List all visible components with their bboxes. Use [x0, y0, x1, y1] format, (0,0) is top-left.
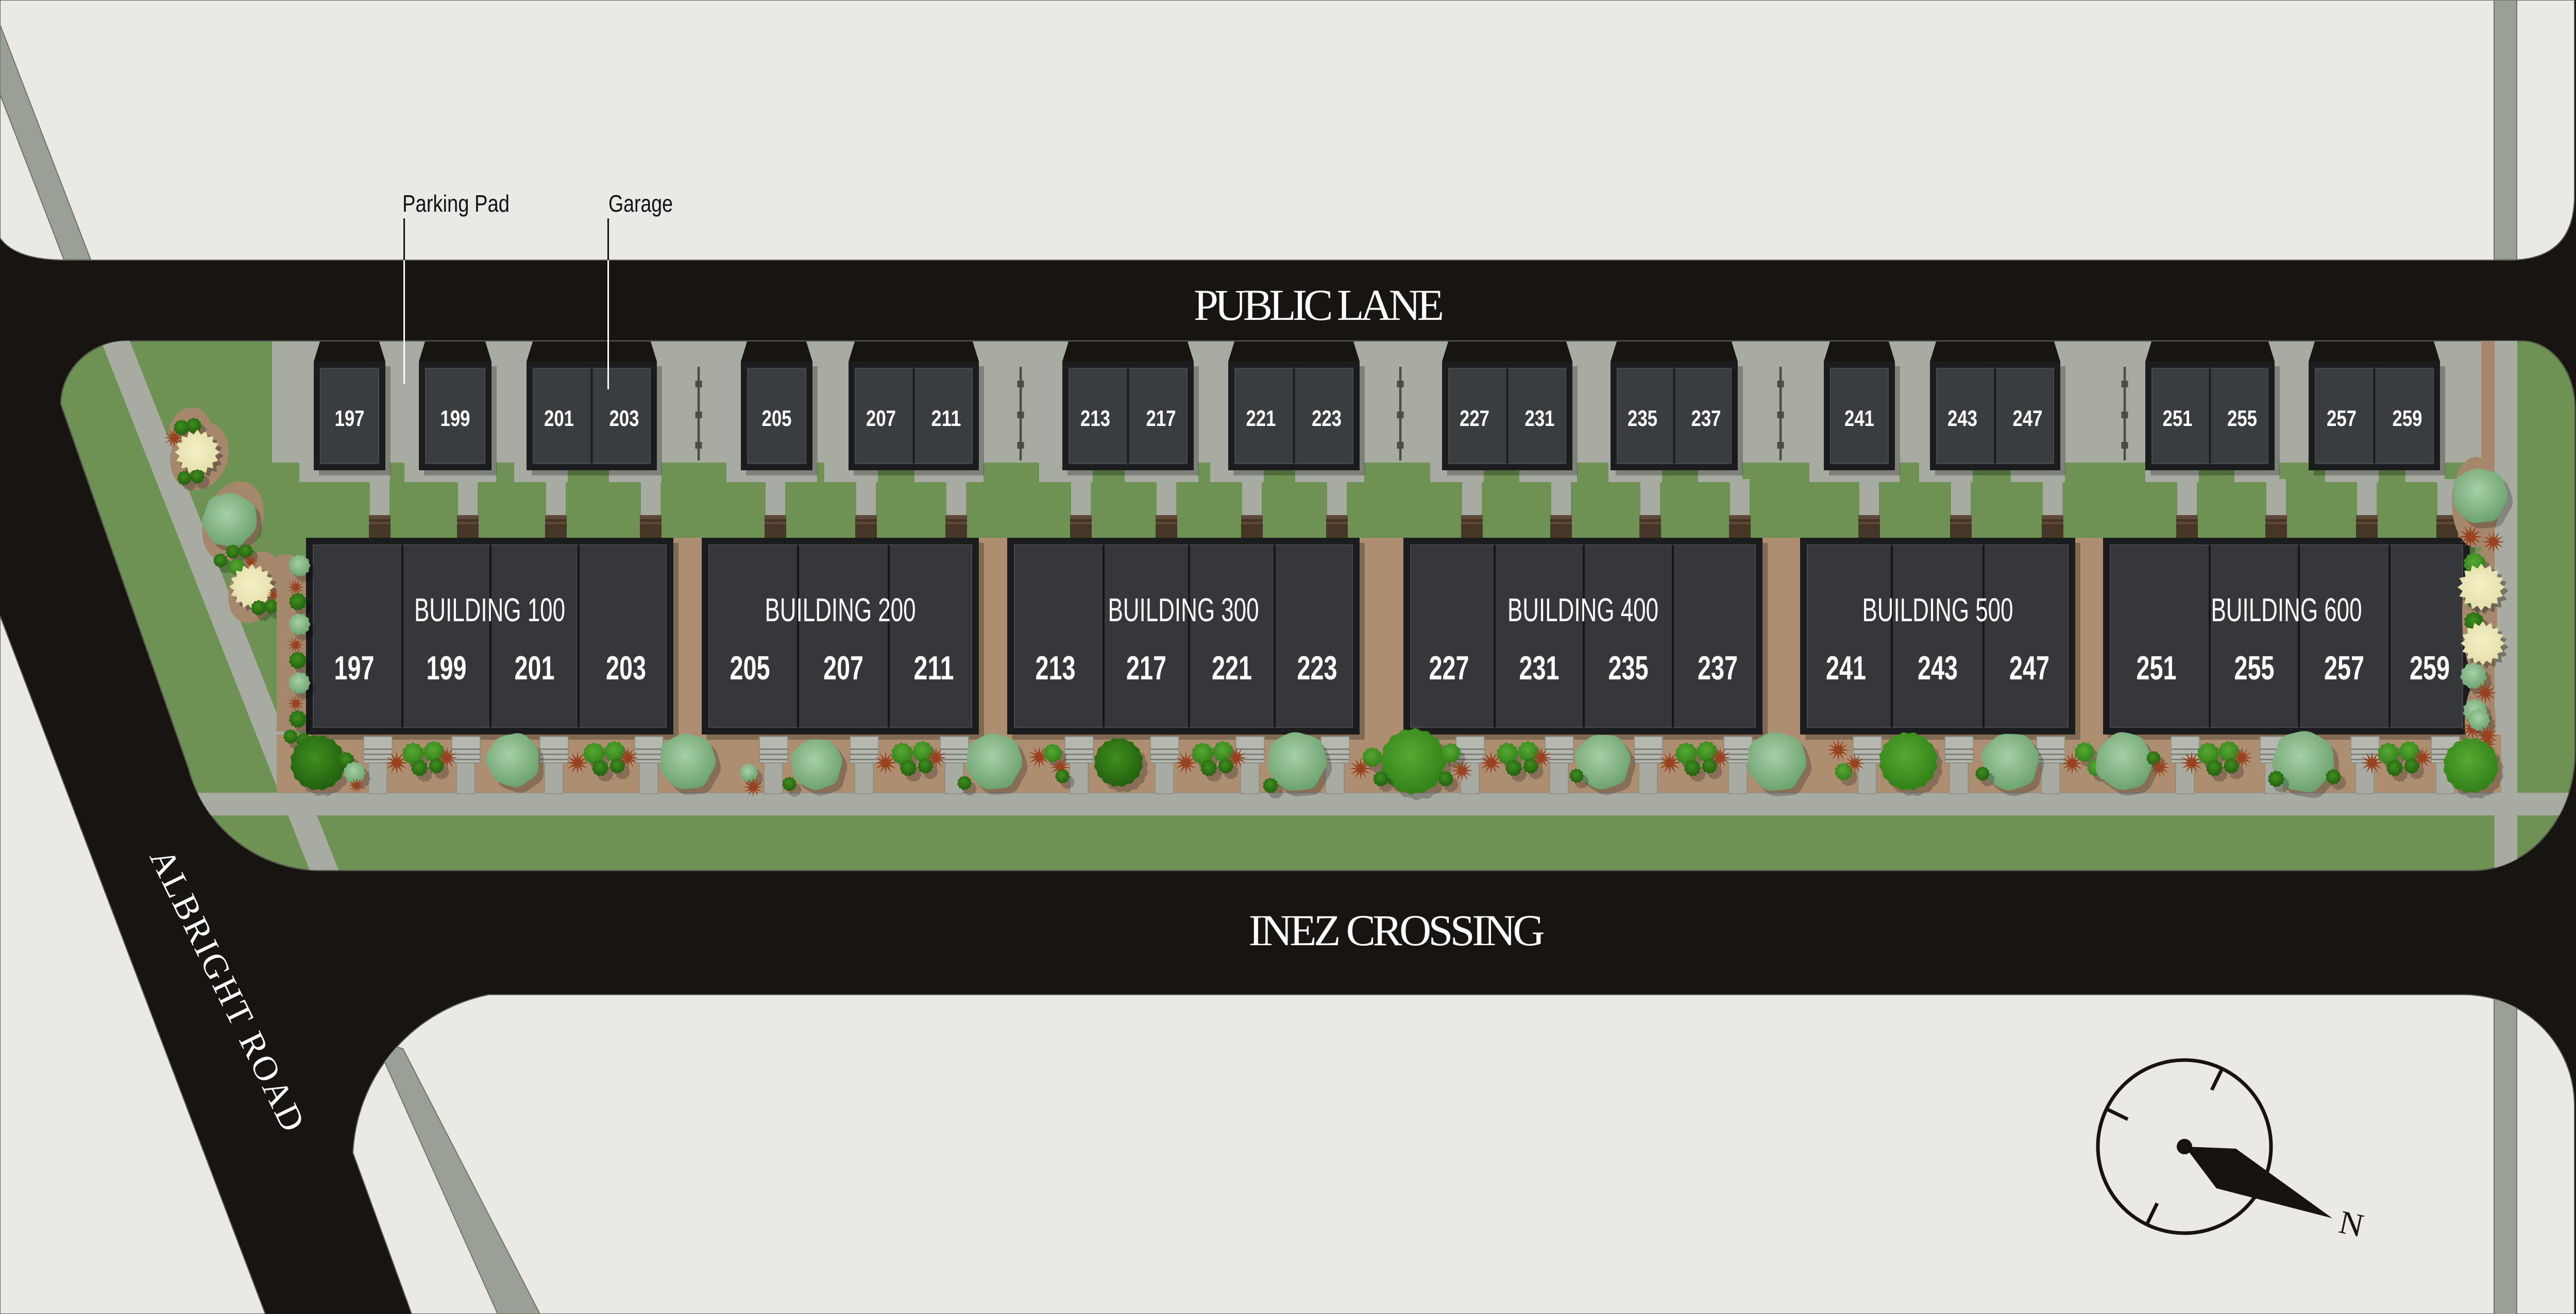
svg-text:PUBLIC LANE: PUBLIC LANE	[1194, 280, 1444, 330]
svg-text:213: 213	[1036, 649, 1076, 687]
svg-text:199: 199	[440, 406, 470, 431]
svg-text:213: 213	[1080, 406, 1110, 431]
svg-text:227: 227	[1429, 649, 1469, 687]
svg-text:259: 259	[2410, 649, 2450, 687]
svg-text:BUILDING 600: BUILDING 600	[2211, 591, 2362, 628]
svg-text:247: 247	[2009, 649, 2049, 687]
svg-text:257: 257	[2324, 649, 2364, 687]
svg-text:Parking Pad: Parking Pad	[402, 190, 510, 217]
svg-text:255: 255	[2234, 649, 2275, 687]
svg-text:BUILDING 500: BUILDING 500	[1862, 591, 2013, 628]
svg-text:BUILDING 100: BUILDING 100	[414, 591, 565, 628]
svg-text:217: 217	[1146, 406, 1176, 431]
svg-text:221: 221	[1246, 406, 1276, 431]
svg-text:255: 255	[2227, 406, 2257, 431]
svg-text:241: 241	[1826, 649, 1866, 687]
svg-text:237: 237	[1691, 406, 1721, 431]
svg-text:BUILDING 400: BUILDING 400	[1507, 591, 1658, 628]
svg-text:251: 251	[2137, 649, 2177, 687]
svg-text:199: 199	[427, 649, 467, 687]
svg-text:259: 259	[2393, 406, 2422, 431]
svg-text:211: 211	[914, 649, 954, 687]
svg-text:231: 231	[1525, 406, 1555, 431]
svg-text:227: 227	[1460, 406, 1489, 431]
svg-text:205: 205	[730, 649, 770, 687]
svg-text:243: 243	[1918, 649, 1958, 687]
svg-text:235: 235	[1608, 649, 1649, 687]
svg-text:235: 235	[1628, 406, 1657, 431]
svg-text:205: 205	[762, 406, 792, 431]
svg-text:BUILDING 200: BUILDING 200	[765, 591, 916, 628]
svg-text:223: 223	[1312, 406, 1342, 431]
svg-text:247: 247	[2013, 406, 2043, 431]
svg-text:251: 251	[2163, 406, 2193, 431]
svg-text:223: 223	[1297, 649, 1337, 687]
svg-text:211: 211	[931, 406, 961, 431]
svg-text:197: 197	[335, 406, 365, 431]
svg-text:207: 207	[823, 649, 863, 687]
svg-text:237: 237	[1698, 649, 1738, 687]
svg-text:201: 201	[515, 649, 555, 687]
svg-text:Garage: Garage	[608, 190, 673, 217]
svg-text:201: 201	[544, 406, 574, 431]
svg-text:BUILDING 300: BUILDING 300	[1108, 591, 1259, 628]
svg-text:243: 243	[1947, 406, 1977, 431]
svg-text:203: 203	[606, 649, 646, 687]
svg-text:257: 257	[2327, 406, 2357, 431]
svg-text:207: 207	[866, 406, 896, 431]
svg-text:221: 221	[1212, 649, 1252, 687]
svg-text:241: 241	[1844, 406, 1874, 431]
svg-text:INEZ CROSSING: INEZ CROSSING	[1249, 906, 1545, 955]
svg-text:217: 217	[1126, 649, 1166, 687]
svg-text:231: 231	[1519, 649, 1560, 687]
svg-text:203: 203	[609, 406, 639, 431]
svg-text:197: 197	[334, 649, 375, 687]
